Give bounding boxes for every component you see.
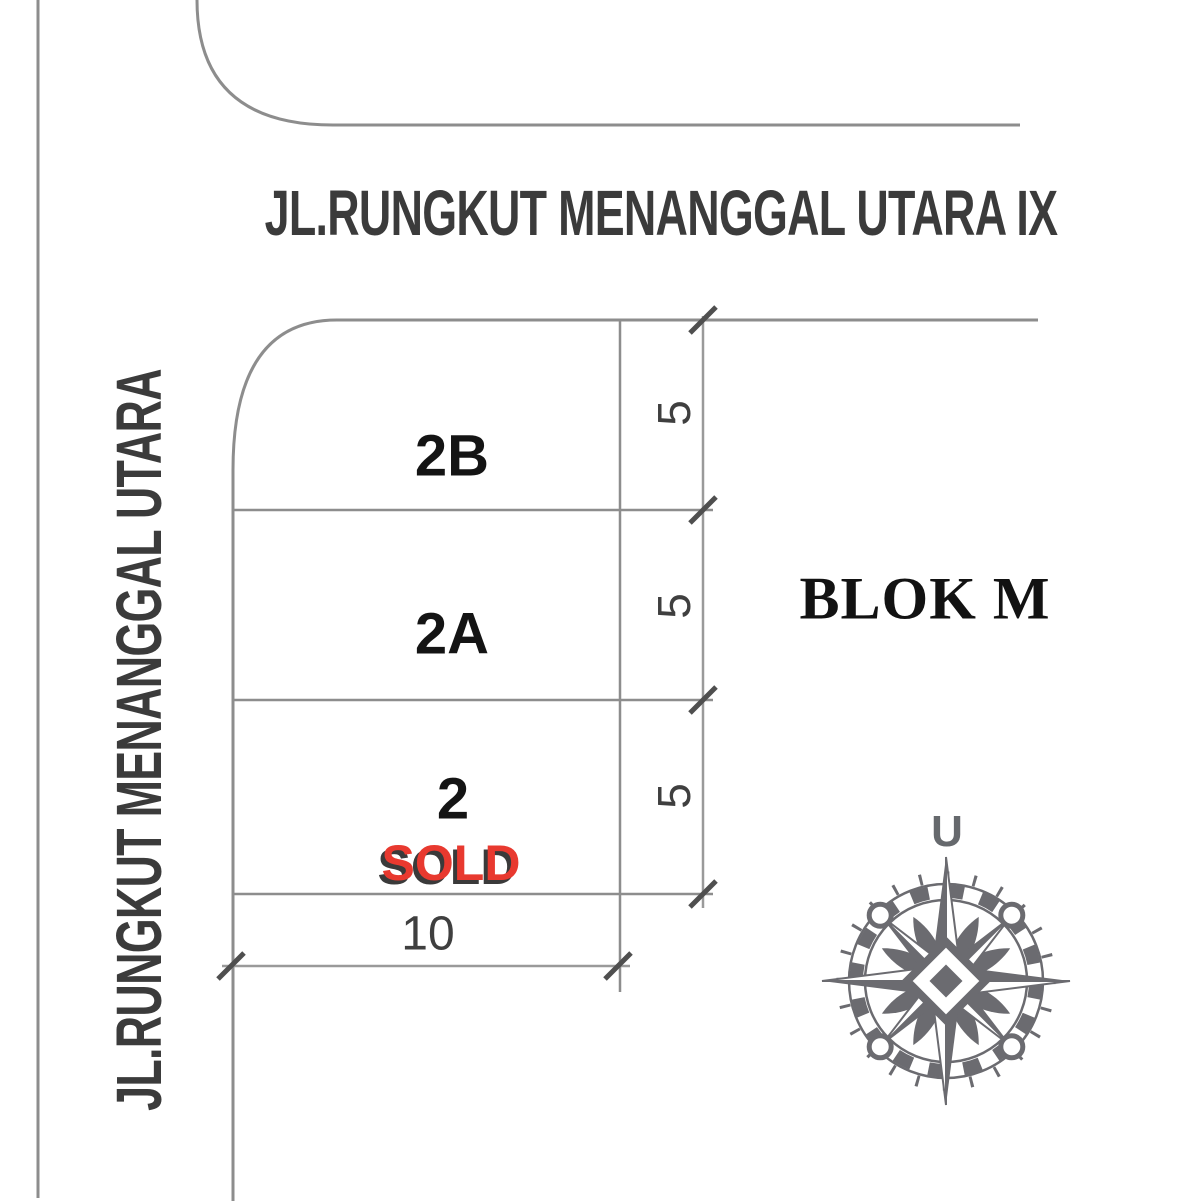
plot-label-2a: 2A	[415, 601, 489, 668]
block-top-edge	[233, 320, 1038, 470]
dimension-depth-1: 5	[647, 400, 701, 426]
dimension-depth-2: 5	[647, 593, 701, 619]
sold-status-badge: SOLD	[382, 834, 521, 892]
compass-rose-icon	[822, 857, 1070, 1105]
plot-label-2b: 2B	[415, 423, 489, 490]
dimension-width: 10	[401, 907, 454, 962]
street-name-left: JL.RUNGKUT MENANGGAL UTARA	[102, 369, 176, 1111]
street-name-top: JL.RUNGKUT MENANGGAL UTARA IX	[265, 176, 1058, 250]
site-plan: JL.RUNGKUT MENANGGAL UTARA IX JL.RUNGKUT…	[0, 0, 1200, 1201]
compass-north-label: U	[931, 807, 963, 857]
street-top-edge	[197, 0, 1020, 125]
dimension-depth-3: 5	[647, 783, 701, 809]
block-name: BLOK M	[799, 565, 1050, 634]
plot-label-2: 2	[437, 766, 469, 833]
